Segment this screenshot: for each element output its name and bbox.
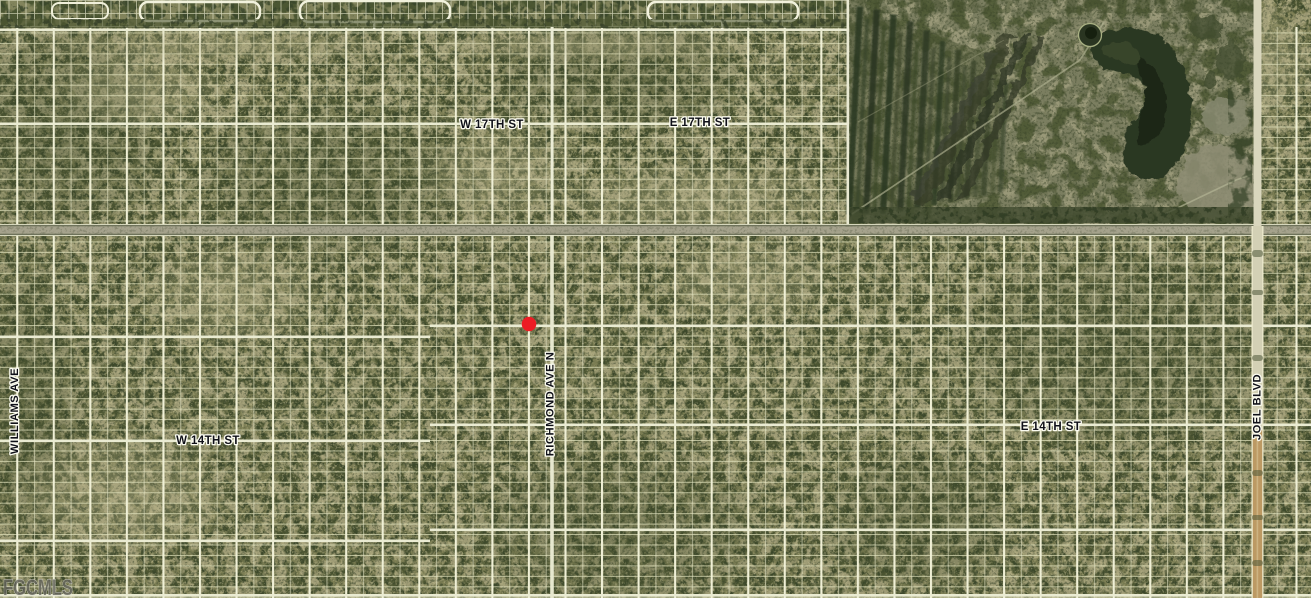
- svg-text:W 17TH ST: W 17TH ST: [460, 119, 524, 131]
- svg-text:W 14TH ST: W 14TH ST: [176, 435, 240, 447]
- svg-text:RICHMOND AVE N: RICHMOND AVE N: [544, 352, 556, 457]
- svg-text:JOEL BLVD: JOEL BLVD: [1251, 374, 1263, 440]
- svg-text:E 17TH ST: E 17TH ST: [670, 117, 730, 129]
- svg-text:E 14TH ST: E 14TH ST: [1021, 421, 1081, 433]
- svg-text:FGCMLS: FGCMLS: [3, 575, 73, 598]
- svg-text:WILLIAMS AVE: WILLIAMS AVE: [9, 368, 21, 454]
